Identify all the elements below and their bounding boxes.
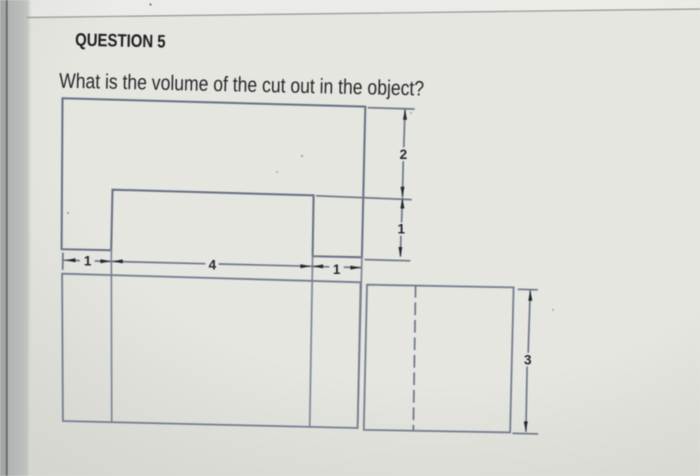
- svg-text:QUESTION 5: QUESTION 5: [75, 30, 166, 52]
- svg-text:4: 4: [209, 258, 217, 273]
- svg-text:1: 1: [398, 222, 406, 237]
- svg-text:3: 3: [524, 353, 532, 368]
- svg-text:1: 1: [333, 262, 341, 277]
- svg-text:1: 1: [84, 254, 92, 269]
- svg-text:2: 2: [400, 147, 408, 162]
